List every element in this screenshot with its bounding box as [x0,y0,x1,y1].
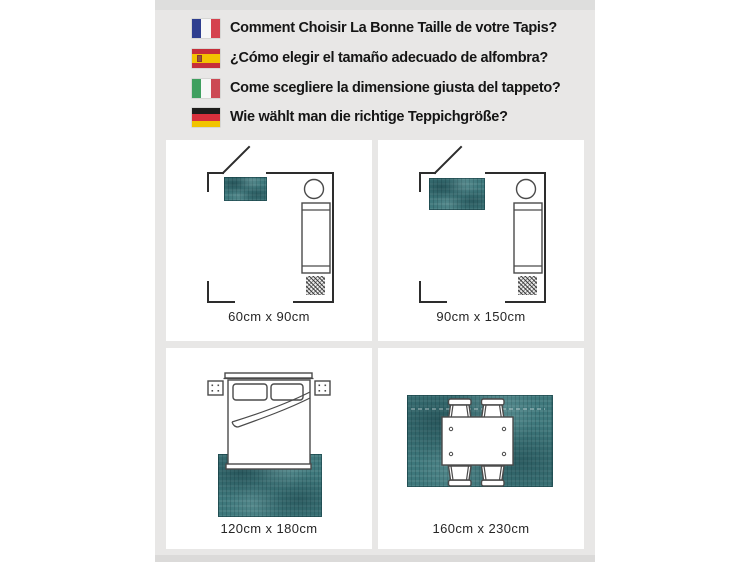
content-column: Comment Choisir La Bonne Taille de votre… [155,0,595,562]
italy-flag-icon [192,79,220,98]
header-line-german: Wie wählt man die richtige Teppichgröße? [192,108,508,127]
door-swing-line [223,147,249,173]
bottom-border-strip [155,555,595,562]
chair-icon [449,399,472,419]
france-flag-icon [192,19,220,38]
header-title-french: Comment Choisir La Bonne Taille de votre… [230,19,557,38]
daybed-icon [302,203,330,273]
size-label: 120cm x 180cm [166,521,372,536]
size-label: 160cm x 230cm [378,521,584,536]
top-border-strip [155,0,595,10]
bed-footboard-icon [226,464,311,469]
header-title-spanish: ¿Cómo elegir el tamaño adecuado de alfom… [230,49,548,68]
headboard-icon [225,373,312,378]
chair-icon [482,466,505,486]
side-table-icon [305,180,324,199]
header-line-french: Comment Choisir La Bonne Taille de votre… [192,19,557,38]
chair-icon [449,466,472,486]
header-line-spanish: ¿Cómo elegir el tamaño adecuado de alfom… [192,49,548,68]
header-title-italian: Come scegliere la dimensione giusta del … [230,79,560,98]
nightstand-left-icon [208,381,223,395]
panel-120x180: 120cm x 180cm [166,348,372,549]
bedroom-diagram [166,348,372,549]
spain-crest-icon [197,55,202,62]
dining-diagram [378,348,584,549]
rug-size-guide-infographic: Comment Choisir La Bonne Taille de votre… [0,0,750,562]
dining-table-icon [442,417,513,465]
size-label: 60cm x 90cm [166,309,372,324]
pillow-left-icon [233,384,267,400]
panel-160x230: 160cm x 230cm [378,348,584,549]
daybed-icon [514,203,542,273]
panel-90x150: 90cm x 150cm [378,140,584,341]
header-title-german: Wie wählt man die richtige Teppichgröße? [230,108,508,127]
germany-flag-icon [192,108,220,127]
header-line-italian: Come scegliere la dimensione giusta del … [192,79,560,98]
chair-icon [482,399,505,419]
panel-60x90: 60cm x 90cm [166,140,372,341]
side-table-icon [517,180,536,199]
spain-flag-icon [192,49,220,68]
door-swing-line [435,147,461,173]
nightstand-right-icon [315,381,330,395]
size-label: 90cm x 150cm [378,309,584,324]
